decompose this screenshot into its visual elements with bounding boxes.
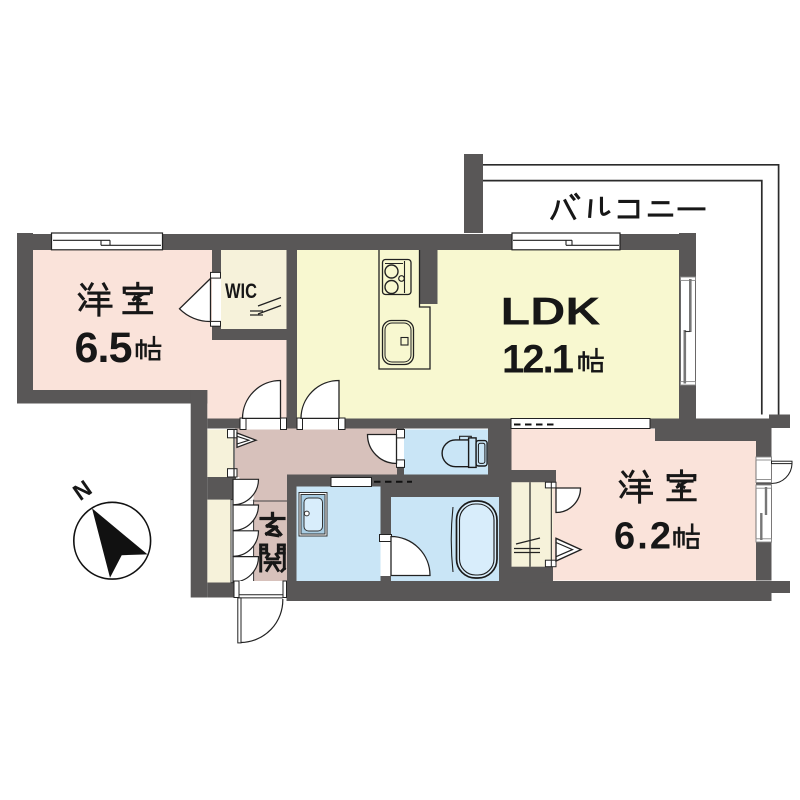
- svg-text:LDK: LDK: [501, 291, 601, 334]
- svg-text:6.2: 6.2: [614, 516, 671, 558]
- svg-text:12.1: 12.1: [502, 338, 574, 382]
- svg-text:WIC: WIC: [225, 280, 257, 303]
- svg-text:6.5: 6.5: [75, 324, 133, 372]
